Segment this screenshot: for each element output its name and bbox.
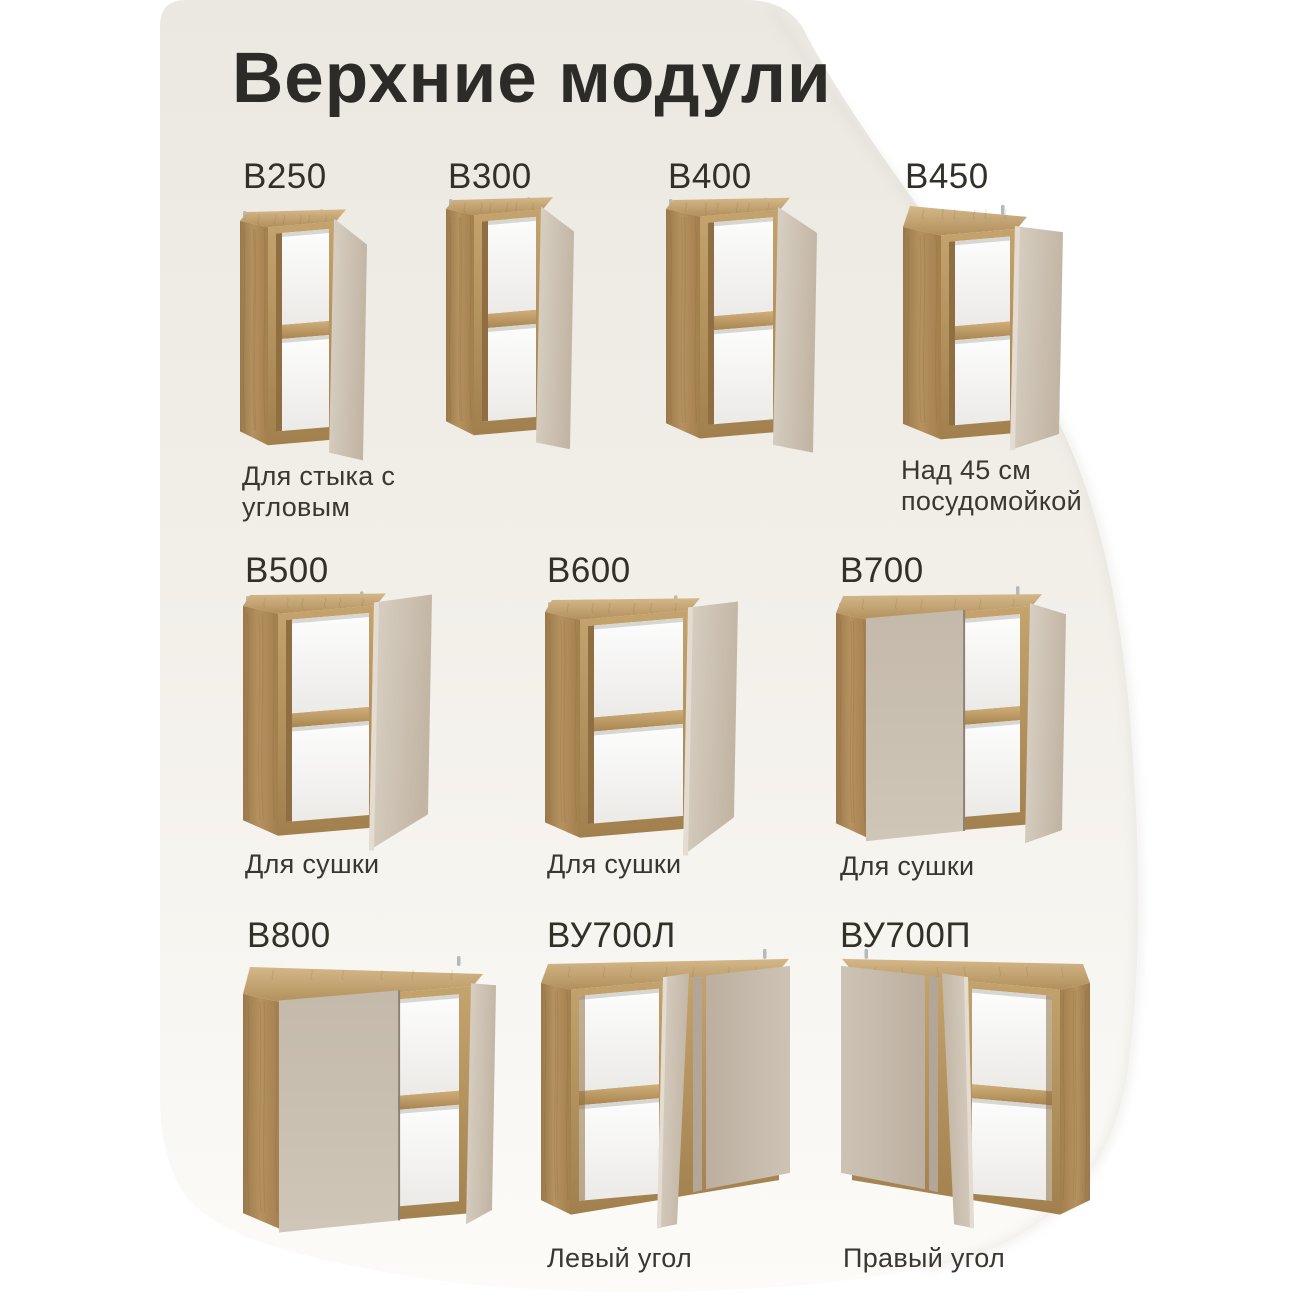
module-label-b800: В800 <box>247 916 331 956</box>
module-caption-b700: Для сушки <box>840 851 1090 882</box>
module-label-b600: В600 <box>547 551 631 591</box>
catalog-page: Верхние модули В250 Для стыка с угловым … <box>0 0 1300 1300</box>
cabinet-image-bu700p <box>836 963 1090 1245</box>
module-caption-b600: Для сушки <box>547 849 797 880</box>
module-caption-bu700p: Правый угол <box>843 1243 1093 1274</box>
module-label-b400: В400 <box>668 157 752 197</box>
module-label-b450: В450 <box>905 157 989 197</box>
module-caption-b500: Для сушки <box>245 849 495 880</box>
cabinet-image-b600 <box>545 599 752 884</box>
module-caption-b450: Над 45 см посудомойкой <box>901 455 1121 517</box>
cabinet-image-b450 <box>903 205 1077 482</box>
module-label-b300: В300 <box>448 157 532 197</box>
cabinet-image-bu700l <box>541 963 795 1245</box>
module-caption-bu700l: Левый угол <box>547 1243 797 1274</box>
module-label-b500: В500 <box>245 551 329 591</box>
module-caption-b250: Для стыка с угловым <box>242 461 417 523</box>
cabinet-image-b700 <box>836 595 1080 888</box>
module-label-bu700l: ВУ700Л <box>547 916 676 956</box>
cabinet-image-b800 <box>243 966 510 1262</box>
module-label-b250: В250 <box>243 157 327 197</box>
module-label-b700: В700 <box>840 551 924 591</box>
module-label-bu700p: ВУ700П <box>840 916 971 956</box>
cabinet-image-b400 <box>666 199 831 497</box>
cabinet-image-b500 <box>243 594 446 878</box>
cabinet-image-b300 <box>446 199 588 493</box>
page-title: Верхние модули <box>232 38 832 119</box>
